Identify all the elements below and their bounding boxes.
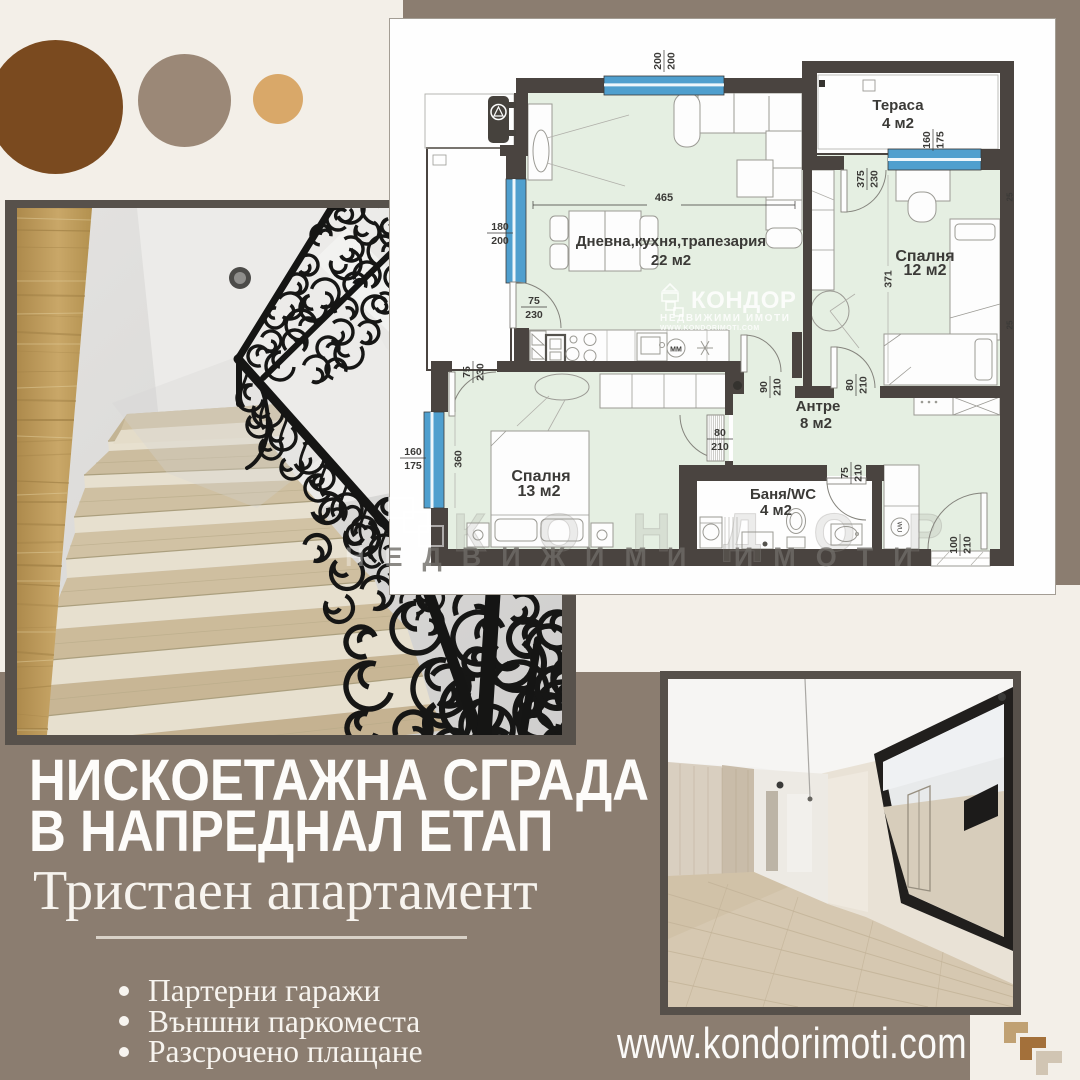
svg-text:4 м2: 4 м2	[882, 115, 914, 132]
svg-text:360: 360	[453, 450, 465, 468]
svg-text:200: 200	[666, 52, 678, 70]
svg-text:90: 90	[758, 381, 770, 393]
svg-text:180: 180	[491, 221, 509, 233]
svg-text:200: 200	[491, 235, 509, 247]
svg-text:230: 230	[475, 363, 487, 381]
svg-text:465: 465	[655, 192, 673, 204]
svg-text:200: 200	[652, 52, 664, 70]
svg-text:Дневна,кухня,трапезария: Дневна,кухня,трапезария	[576, 233, 766, 250]
svg-text:80: 80	[844, 379, 856, 391]
svg-text:75: 75	[461, 366, 473, 378]
svg-text:75: 75	[528, 295, 540, 307]
svg-text:WWW.KONDORIMOTI.COM: WWW.KONDORIMOTI.COM	[660, 325, 760, 332]
svg-text:160: 160	[404, 446, 422, 458]
svg-text:КОНДОР: КОНДОР	[691, 287, 796, 314]
svg-text:8 м2: 8 м2	[800, 415, 832, 432]
svg-text:НЕДВИЖИМИ ИМОТИ: НЕДВИЖИМИ ИМОТИ	[660, 313, 791, 324]
svg-text:371: 371	[883, 270, 895, 288]
svg-text:НЕДВИЖИМИ ИМОТИ: НЕДВИЖИМИ ИМОТИ	[345, 542, 933, 572]
svg-text:175: 175	[404, 460, 422, 472]
svg-text:MM: MM	[670, 347, 682, 354]
svg-text:Тераса: Тераса	[872, 97, 924, 114]
svg-text:12 м2: 12 м2	[904, 262, 947, 279]
svg-text:160: 160	[921, 131, 933, 149]
svg-text:Антре: Антре	[796, 398, 841, 415]
svg-text:25: 25	[1006, 192, 1015, 201]
svg-text:22 м2: 22 м2	[651, 252, 691, 269]
svg-text:230: 230	[525, 309, 543, 321]
svg-text:230: 230	[869, 170, 881, 188]
svg-text:375: 375	[855, 170, 867, 188]
svg-text:210: 210	[858, 376, 870, 394]
svg-text:80: 80	[714, 427, 726, 439]
svg-text:210: 210	[962, 536, 974, 554]
svg-text:210: 210	[711, 441, 729, 453]
svg-text:210: 210	[772, 378, 784, 396]
svg-text:25: 25	[1006, 320, 1015, 329]
svg-text:75: 75	[839, 467, 851, 479]
svg-text:175: 175	[935, 131, 947, 149]
